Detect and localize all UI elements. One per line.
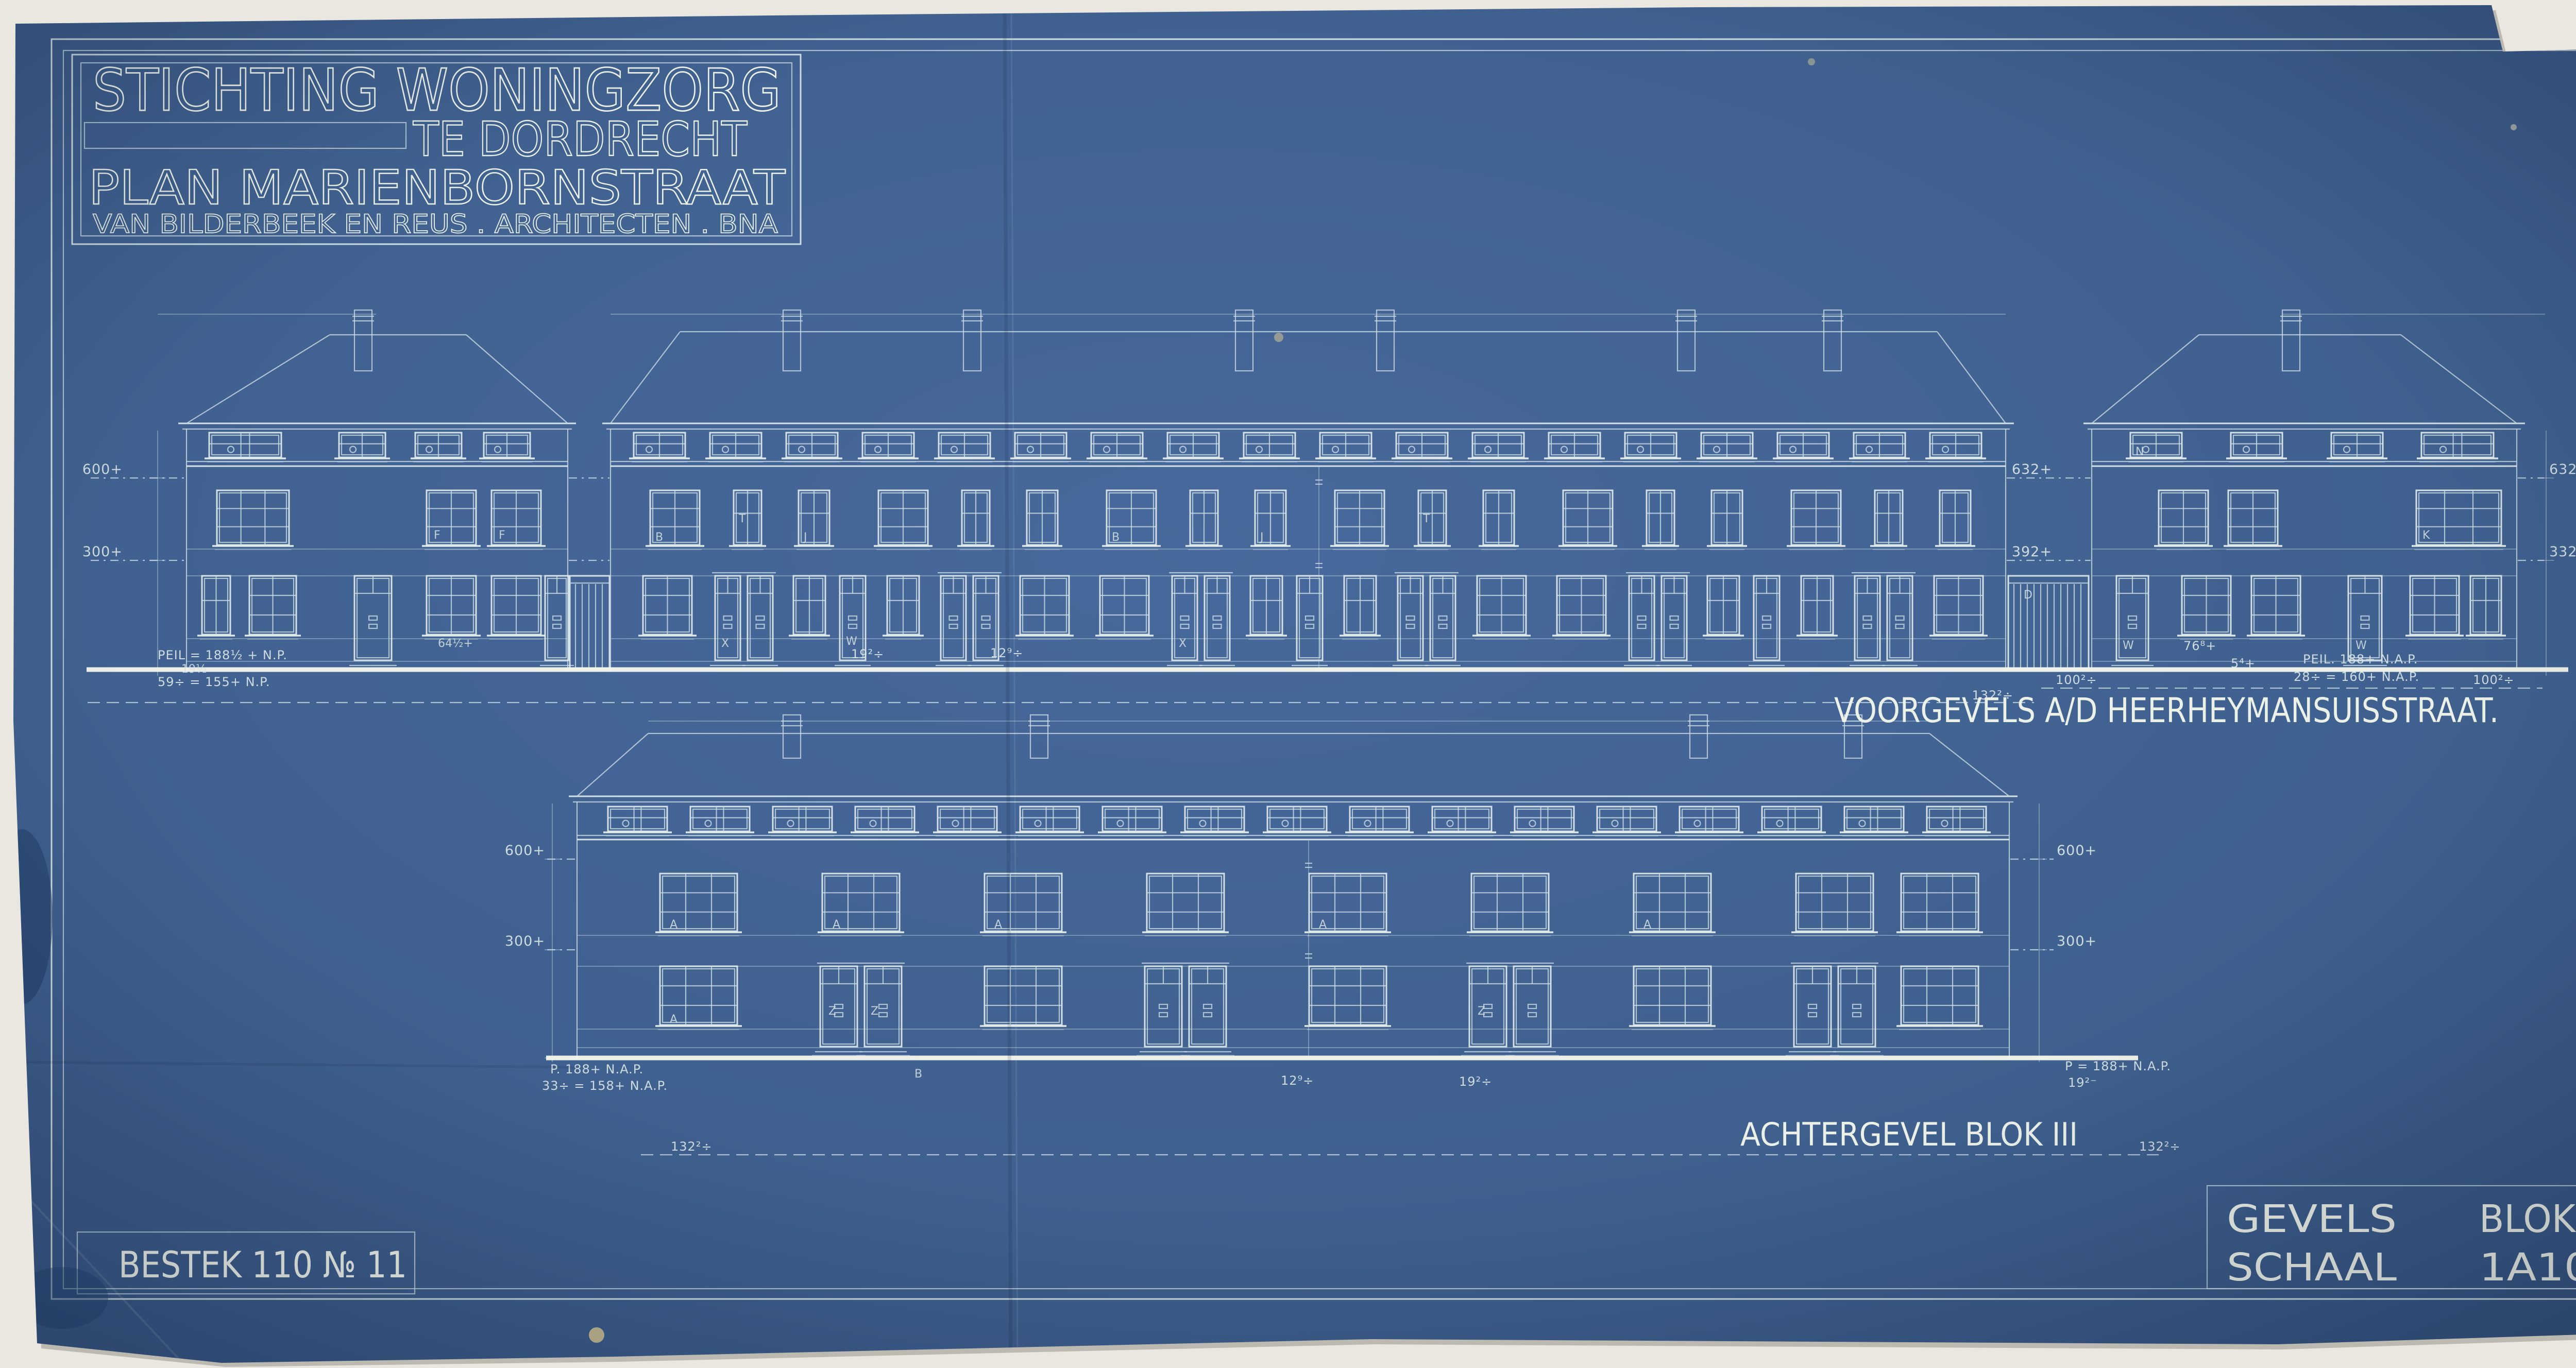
blueprint-page: 600+632+632+300+332+392+PEIL = 188½ + N.… [0, 0, 2576, 1368]
blueprint-drawing: 600+632+632+300+332+392+PEIL = 188½ + N.… [0, 0, 2576, 1368]
vignette-overlay [0, 0, 2576, 1368]
sheet-content: 600+632+632+300+332+392+PEIL = 188½ + N.… [0, 0, 2576, 1368]
